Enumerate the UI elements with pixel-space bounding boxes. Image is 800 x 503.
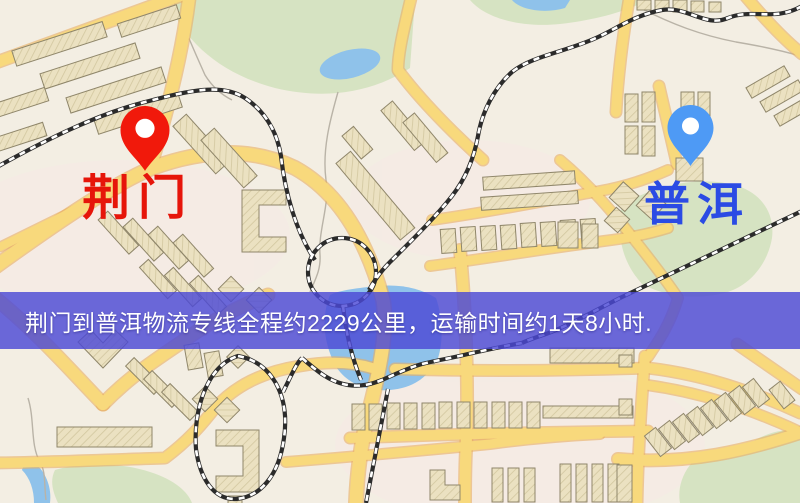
- logistics-route-map-image: 荆门 普洱 荆门到普洱物流专线全程约2229公里，运输时间约1天8小时.: [0, 0, 800, 503]
- banner-text: 荆门到普洱物流专线全程约2229公里，运输时间约1天8小时.: [25, 292, 652, 349]
- map-canvas: [0, 0, 800, 503]
- origin-label: 荆门: [82, 175, 194, 223]
- origin-pin-icon: [119, 106, 171, 177]
- destination-label: 普洱: [644, 181, 750, 227]
- route-info-banner: 荆门到普洱物流专线全程约2229公里，运输时间约1天8小时.: [0, 292, 800, 349]
- destination-pin-icon: [667, 105, 714, 172]
